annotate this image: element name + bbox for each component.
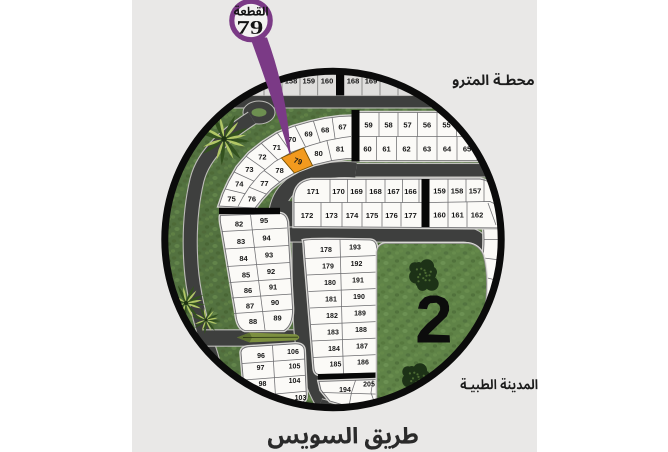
svg-text:93: 93 xyxy=(265,251,273,260)
svg-text:168: 168 xyxy=(369,187,382,196)
svg-text:191: 191 xyxy=(352,278,364,285)
svg-text:105: 105 xyxy=(289,364,301,371)
svg-text:104: 104 xyxy=(289,378,301,385)
svg-text:63: 63 xyxy=(423,145,431,154)
svg-text:170: 170 xyxy=(332,187,345,196)
svg-text:83: 83 xyxy=(237,237,245,246)
svg-text:183: 183 xyxy=(327,330,339,337)
svg-text:175: 175 xyxy=(366,211,379,220)
svg-text:187: 187 xyxy=(356,344,368,351)
svg-text:88: 88 xyxy=(249,317,257,326)
svg-text:184: 184 xyxy=(328,346,340,353)
svg-text:98: 98 xyxy=(259,381,267,388)
svg-text:92: 92 xyxy=(267,267,275,276)
svg-text:56: 56 xyxy=(423,121,431,130)
svg-text:161: 161 xyxy=(451,211,464,220)
svg-text:162: 162 xyxy=(471,211,484,220)
svg-text:157: 157 xyxy=(469,187,482,196)
svg-text:85: 85 xyxy=(242,271,250,280)
svg-text:186: 186 xyxy=(357,360,369,367)
svg-text:89: 89 xyxy=(273,314,281,323)
svg-text:90: 90 xyxy=(271,298,279,307)
svg-text:179: 179 xyxy=(322,264,334,271)
svg-text:82: 82 xyxy=(235,220,243,229)
svg-text:91: 91 xyxy=(269,283,277,292)
svg-text:74: 74 xyxy=(235,180,244,189)
svg-text:86: 86 xyxy=(244,286,252,295)
svg-text:173: 173 xyxy=(325,211,338,220)
svg-text:168: 168 xyxy=(347,77,360,86)
svg-text:94: 94 xyxy=(262,234,271,243)
svg-text:171: 171 xyxy=(307,187,320,196)
svg-text:67: 67 xyxy=(338,123,346,132)
svg-text:160: 160 xyxy=(433,211,446,220)
svg-text:80: 80 xyxy=(314,149,322,158)
svg-text:158: 158 xyxy=(451,187,464,196)
svg-text:59: 59 xyxy=(364,121,372,130)
svg-text:181: 181 xyxy=(325,297,337,304)
svg-text:64: 64 xyxy=(443,145,452,154)
svg-text:95: 95 xyxy=(260,216,268,225)
svg-text:193: 193 xyxy=(349,245,361,252)
svg-text:178: 178 xyxy=(320,247,332,254)
svg-text:182: 182 xyxy=(326,313,338,320)
svg-text:81: 81 xyxy=(336,145,344,154)
svg-text:87: 87 xyxy=(246,302,254,311)
svg-text:58: 58 xyxy=(384,121,392,130)
svg-text:71: 71 xyxy=(273,143,281,152)
svg-text:72: 72 xyxy=(258,153,266,162)
svg-text:190: 190 xyxy=(353,294,365,301)
svg-text:60: 60 xyxy=(363,145,371,154)
svg-text:78: 78 xyxy=(275,166,283,175)
svg-text:159: 159 xyxy=(303,77,316,86)
svg-text:174: 174 xyxy=(346,211,359,220)
svg-text:76: 76 xyxy=(248,195,256,204)
svg-text:159: 159 xyxy=(433,187,446,196)
svg-text:189: 189 xyxy=(354,311,366,318)
svg-text:177: 177 xyxy=(404,211,417,220)
svg-text:84: 84 xyxy=(239,254,248,263)
svg-text:176: 176 xyxy=(385,211,398,220)
svg-text:167: 167 xyxy=(387,187,400,196)
svg-text:77: 77 xyxy=(260,179,268,188)
svg-text:69: 69 xyxy=(304,130,312,139)
svg-text:61: 61 xyxy=(382,145,390,154)
svg-text:96: 96 xyxy=(257,353,265,360)
svg-text:172: 172 xyxy=(301,211,314,220)
svg-text:68: 68 xyxy=(321,125,329,134)
svg-text:106: 106 xyxy=(287,349,299,356)
svg-text:188: 188 xyxy=(355,327,367,334)
svg-text:57: 57 xyxy=(403,121,411,130)
svg-text:192: 192 xyxy=(351,261,363,268)
svg-text:73: 73 xyxy=(245,165,253,174)
svg-text:194: 194 xyxy=(339,387,351,394)
svg-text:166: 166 xyxy=(404,187,417,196)
svg-text:169: 169 xyxy=(350,187,363,196)
svg-text:205: 205 xyxy=(363,381,375,388)
svg-text:62: 62 xyxy=(402,145,410,154)
svg-text:180: 180 xyxy=(324,280,336,287)
svg-text:185: 185 xyxy=(330,362,342,369)
svg-text:75: 75 xyxy=(227,194,235,203)
svg-text:97: 97 xyxy=(257,365,265,372)
svg-text:160: 160 xyxy=(321,77,334,86)
